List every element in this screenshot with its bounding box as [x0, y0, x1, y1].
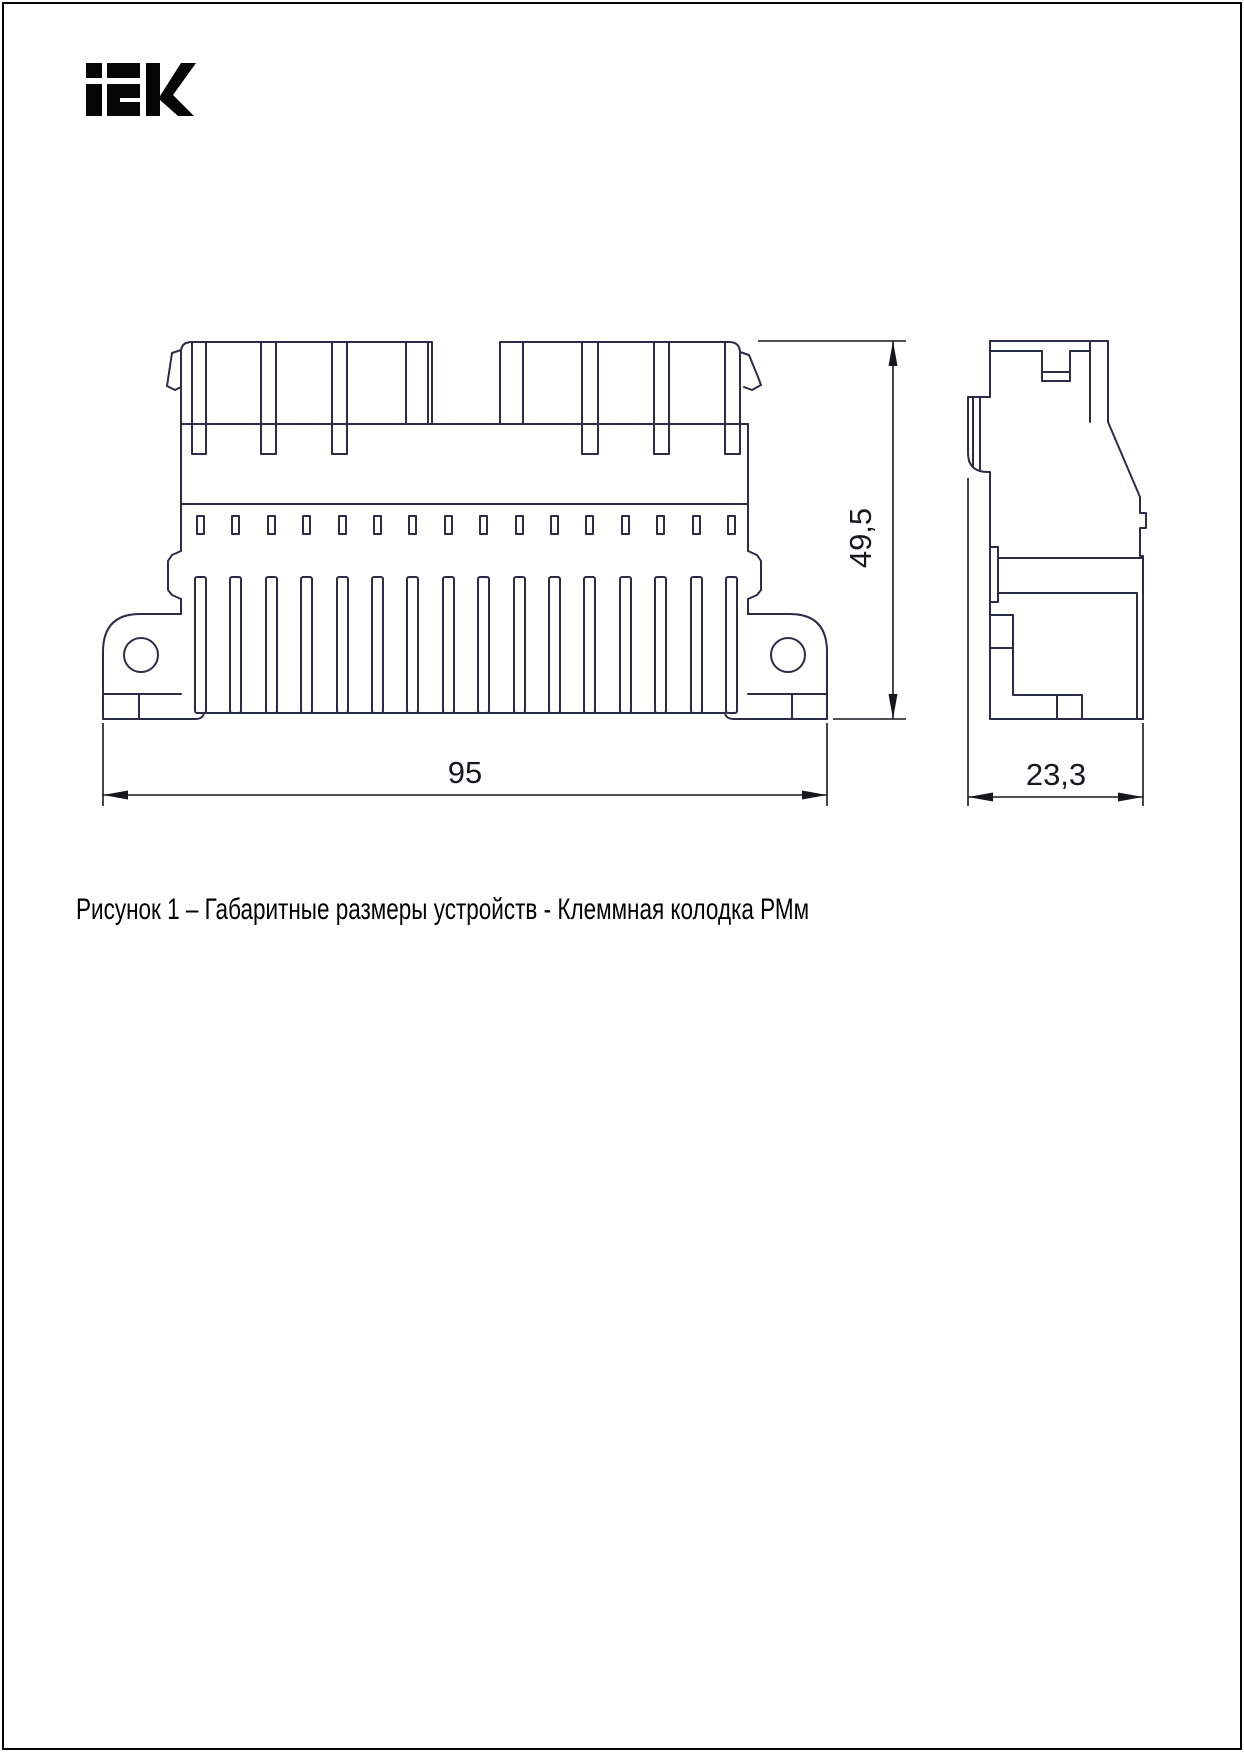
right-latch [748, 551, 761, 599]
dim-width-label: 95 [448, 755, 482, 790]
technical-drawing: 95 49,5 23,3 [0, 0, 1244, 1752]
front-view [103, 342, 827, 719]
left-flap [167, 350, 181, 390]
side-view [968, 341, 1146, 719]
arrow-down-icon [889, 694, 898, 719]
logo-k-arms [160, 63, 196, 116]
left-ear-hole [124, 638, 158, 672]
dimension-height: 49,5 [758, 341, 906, 719]
logo-i-stem [86, 84, 102, 116]
arrow-left-icon [103, 791, 128, 800]
figure-caption: Рисунок 1 – Габаритные размеры устройств… [76, 893, 809, 927]
arrow-up-icon [889, 341, 898, 366]
right-flap [740, 352, 761, 390]
right-ear-hole [771, 638, 805, 672]
slot-row [197, 516, 735, 534]
dim-depth-label: 23,3 [1026, 757, 1086, 792]
arrow-right-icon [1118, 793, 1143, 802]
logo-e-body [107, 84, 140, 116]
fin-row [195, 577, 737, 713]
dimension-depth: 23,3 [968, 478, 1143, 806]
logo-e-top-bar [107, 63, 140, 78]
iek-logo [86, 63, 196, 116]
arrow-left-icon [968, 793, 993, 802]
dim-height-label: 49,5 [843, 508, 878, 568]
logo-k-stem [146, 63, 160, 116]
left-ear [103, 614, 181, 719]
right-ear [748, 614, 827, 719]
dimension-width: 95 [103, 723, 827, 806]
arrow-right-icon [802, 791, 827, 800]
left-latch [168, 551, 181, 599]
document-page: 95 49,5 23,3 Рисунок 1 – Габаритные разм… [0, 0, 1244, 1752]
logo-i-dot [86, 63, 102, 78]
